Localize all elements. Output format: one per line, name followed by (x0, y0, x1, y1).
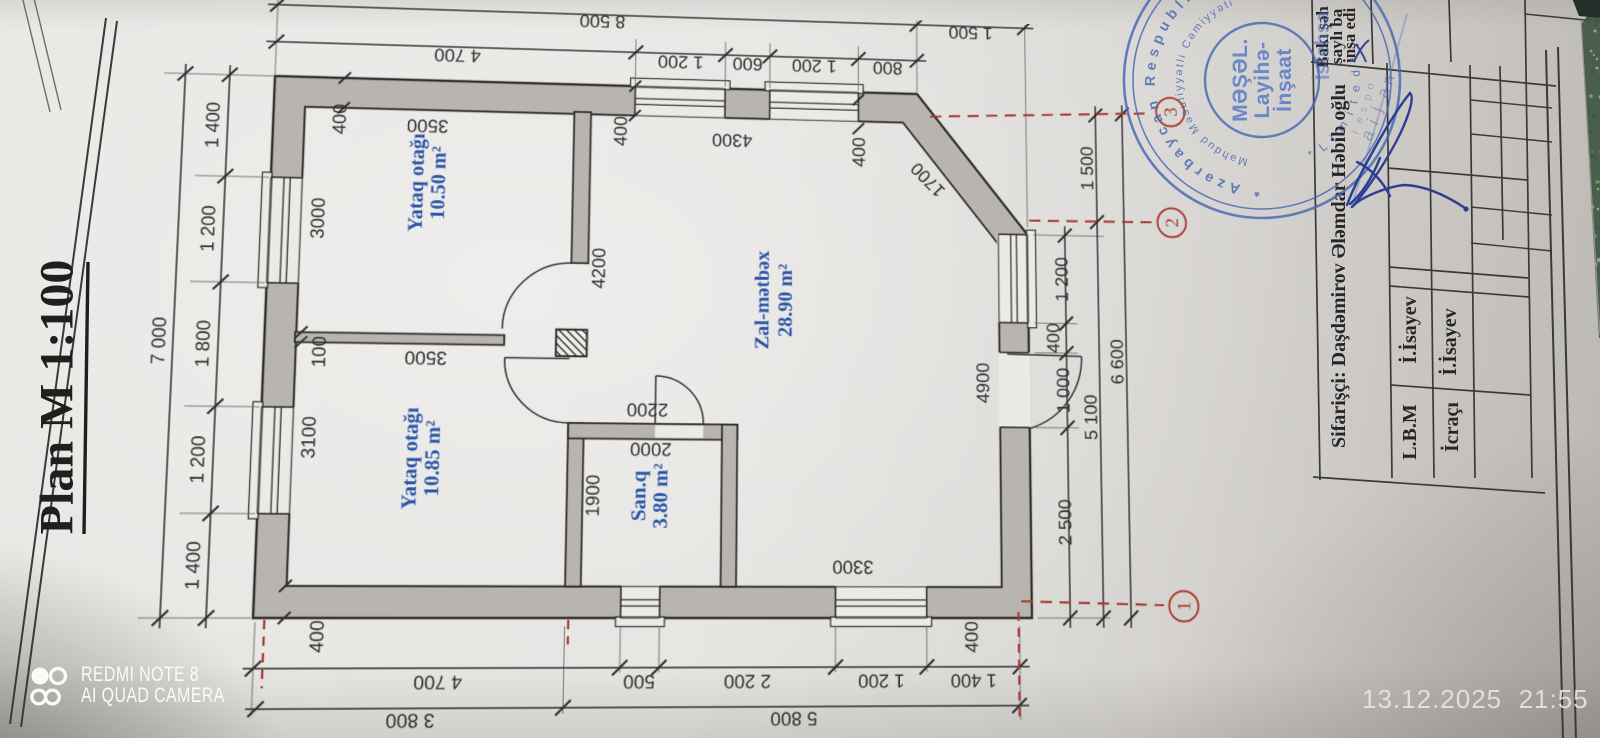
svg-text:İ.İsayev: İ.İsayev (1397, 296, 1421, 363)
svg-text:i: i (1364, 116, 1383, 128)
svg-text:İnşaat: İnşaat (1273, 48, 1296, 112)
svg-text:İstehsa: İstehsa (1311, 10, 1334, 80)
svg-text:o: o (1364, 82, 1377, 90)
svg-text:İcraçı: İcraçı (1439, 402, 1463, 452)
svg-text:L.B.M: L.B.M (1399, 404, 1421, 460)
svg-text:Plan M 1:100: Plan M 1:100 (30, 260, 83, 535)
svg-text:İ.İsayev: İ.İsayev (1437, 308, 1461, 375)
svg-text:n: n (1378, 72, 1399, 87)
svg-text:MƏŞƏL.: MƏŞƏL. (1229, 38, 1252, 122)
svg-text:Layihə-: Layihə- (1251, 41, 1274, 118)
